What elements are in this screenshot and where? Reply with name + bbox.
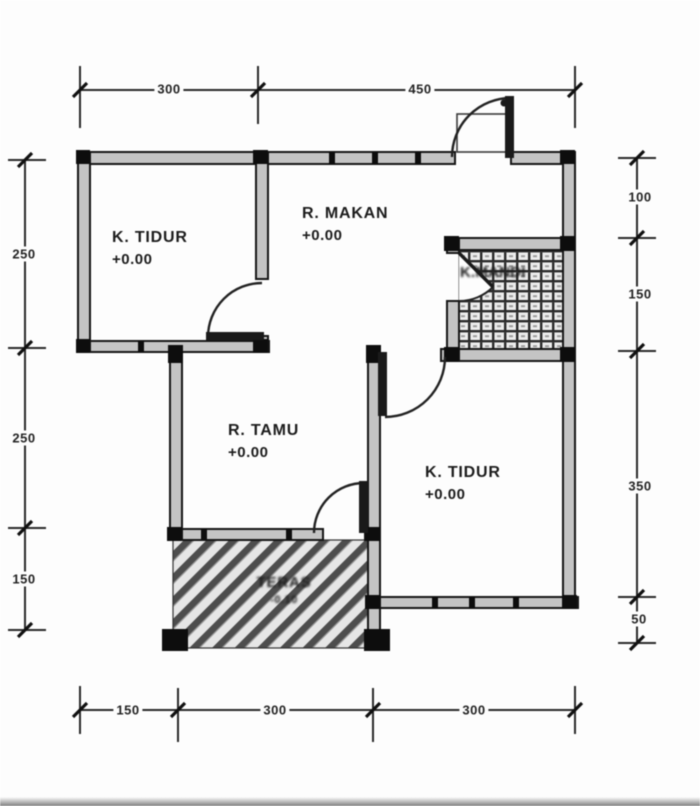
dim-right-2: 150 <box>625 287 654 302</box>
dim-right-3: 350 <box>625 479 654 494</box>
room-name: K.MANDI <box>460 262 526 284</box>
room-label-bedroom-1: K. TIDUR +0.00 <box>112 226 188 271</box>
room-name: R. TAMU <box>228 419 299 442</box>
dim-left-1: 250 <box>9 247 38 262</box>
floor-plan-canvas: K. TIDUR +0.00 R. MAKAN +0.00 K.MANDI R.… <box>0 0 700 806</box>
bottom-edge-strip <box>0 797 700 806</box>
room-name: K. TIDUR <box>425 461 501 484</box>
dim-top-2: 450 <box>405 82 434 97</box>
room-label-dining-room: R. MAKAN +0.00 <box>302 202 388 247</box>
floor-plan-drawing <box>0 0 700 806</box>
dim-bottom-2: 300 <box>260 703 289 718</box>
room-level: -0.10 <box>257 593 312 607</box>
room-level: +0.00 <box>112 249 188 271</box>
room-level: +0.00 <box>302 225 388 247</box>
dim-bottom-3: 300 <box>459 703 488 718</box>
room-level: +0.00 <box>425 484 501 506</box>
dim-bottom-1: 150 <box>113 703 142 718</box>
room-label-bedroom-2: K. TIDUR +0.00 <box>425 461 501 506</box>
room-level: +0.00 <box>228 442 299 464</box>
room-label-terrace: TERAS -0.10 <box>257 573 312 607</box>
room-label-bathroom: K.MANDI <box>460 262 526 284</box>
room-label-living-room: R. TAMU +0.00 <box>228 419 299 464</box>
dim-left-2: 250 <box>9 431 38 446</box>
room-name: R. MAKAN <box>302 202 388 225</box>
room-name: TERAS <box>257 573 312 593</box>
room-name: K. TIDUR <box>112 226 188 249</box>
dim-right-1: 100 <box>625 190 654 205</box>
dim-left-3: 150 <box>9 572 38 587</box>
dim-top-1: 300 <box>154 82 183 97</box>
dim-right-4: 50 <box>628 612 649 627</box>
